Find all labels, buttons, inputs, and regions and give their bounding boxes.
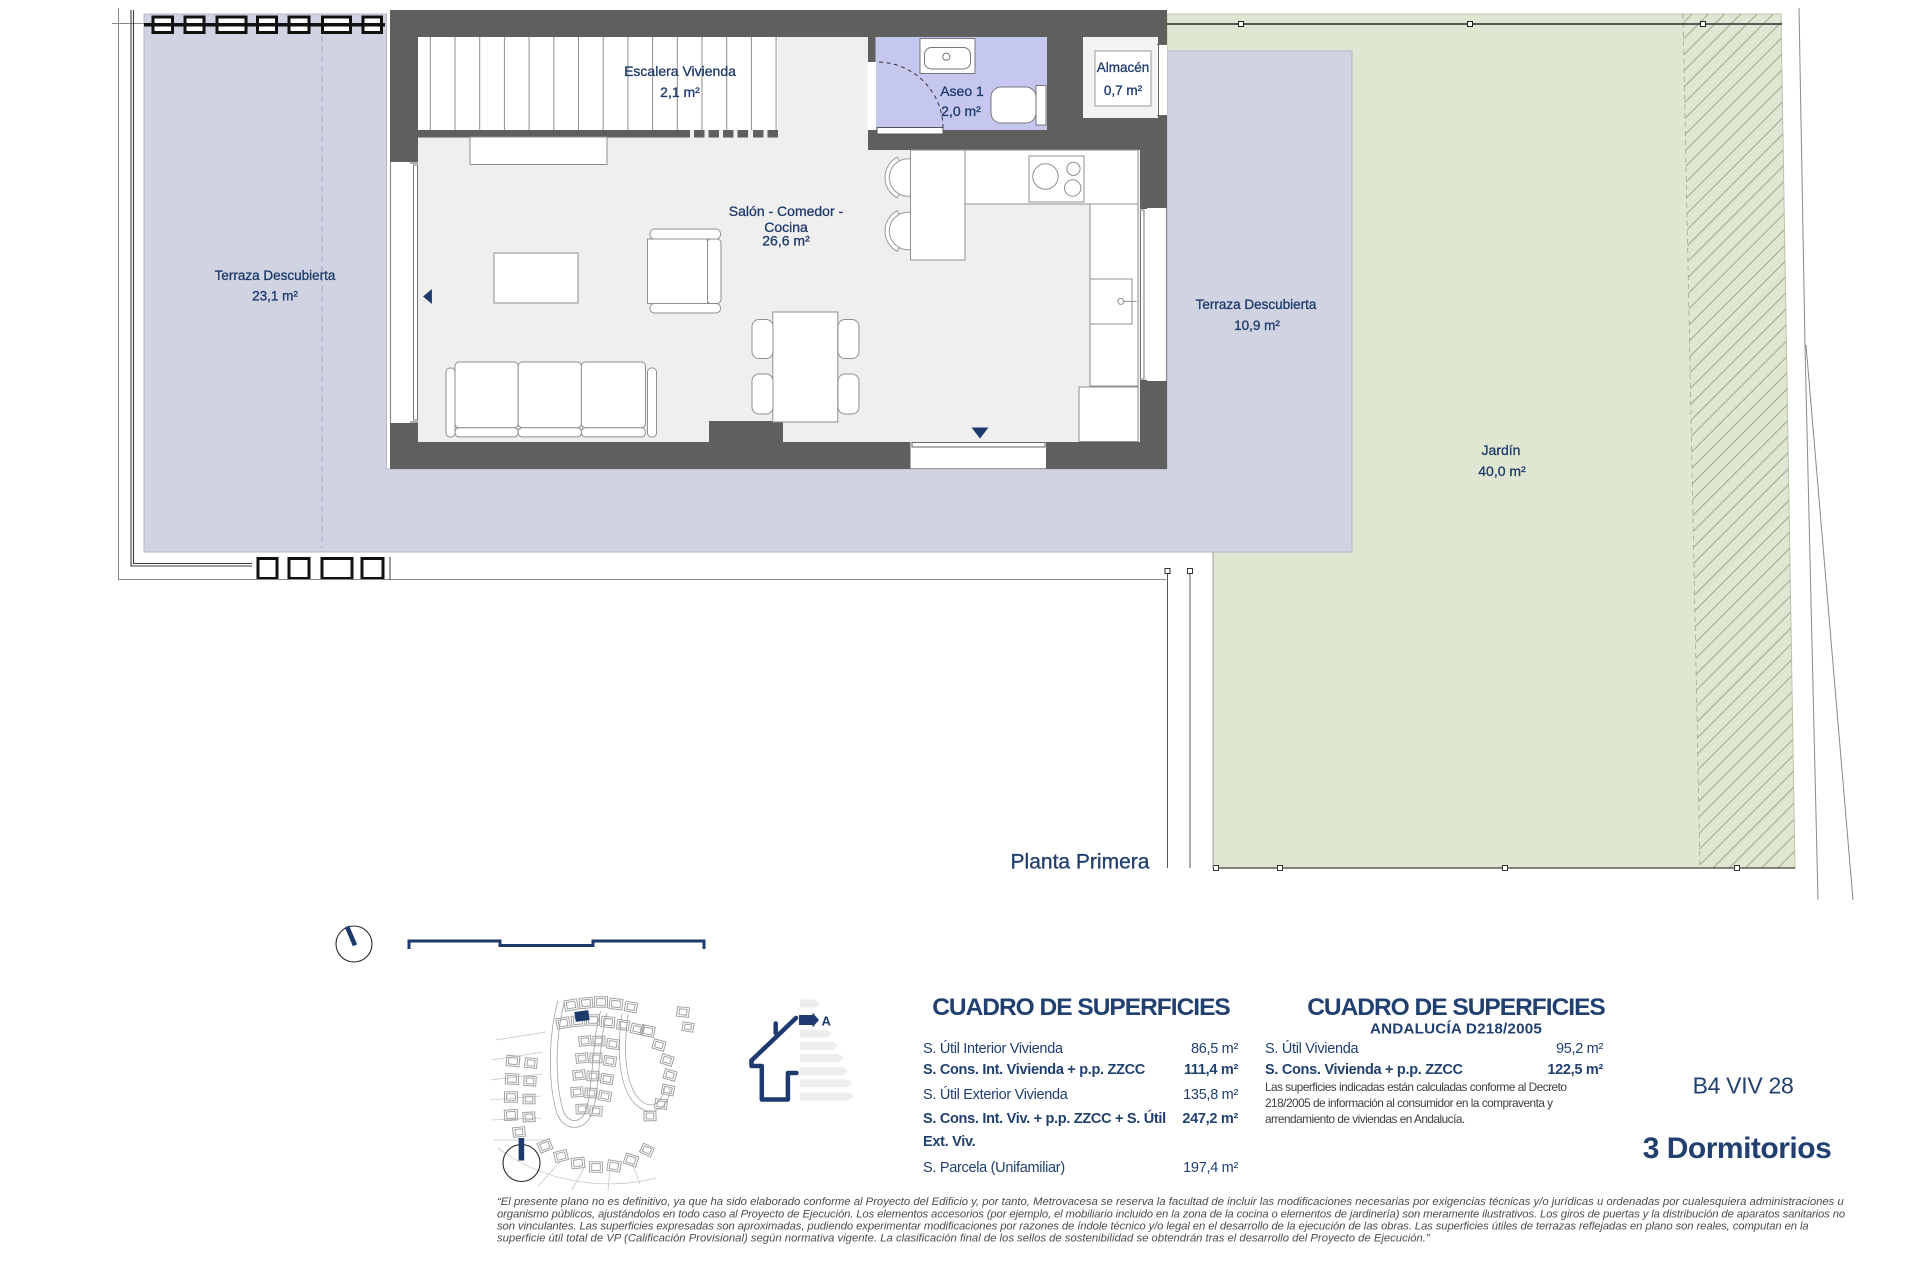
svg-text:Jardín: Jardín [1482,442,1521,458]
svg-text:S. Parcela (Unifamiliar): S. Parcela (Unifamiliar) [923,1160,1065,1176]
svg-text:superficie útil total de VP (C: superficie útil total de VP (Calificació… [497,1233,1431,1245]
svg-text:218/2005 de información al con: 218/2005 de información al consumidor en… [1265,1096,1553,1110]
svg-text:S. Útil Interior Vivienda: S. Útil Interior Vivienda [923,1040,1064,1057]
svg-text:111,4 m²: 111,4 m² [1184,1062,1239,1078]
svg-text:Las superficies indicadas está: Las superficies indicadas están calculad… [1265,1080,1567,1094]
svg-text:S. Útil Exterior Vivienda: S. Útil Exterior Vivienda [923,1086,1069,1103]
svg-text:CUADRO DE SUPERFICIES: CUADRO DE SUPERFICIES [932,994,1230,1021]
svg-text:86,5 m²: 86,5 m² [1191,1041,1239,1057]
svg-text:Planta Primera: Planta Primera [1011,851,1150,874]
svg-text:S. Cons. Int. Viv. + p.p. ZZCC: S. Cons. Int. Viv. + p.p. ZZCC + S. Útil [923,1109,1166,1127]
svg-text:Salón - Comedor -: Salón - Comedor - [729,203,844,219]
svg-text:S. Cons. Int. Vivienda + p.p.: S. Cons. Int. Vivienda + p.p. ZZCC [923,1062,1146,1078]
svg-text:247,2 m²: 247,2 m² [1182,1111,1238,1127]
svg-text:Terraza Descubierta: Terraza Descubierta [1196,297,1317,312]
svg-text:95,2 m²: 95,2 m² [1556,1041,1604,1057]
svg-text:2,1 m²: 2,1 m² [660,84,700,100]
svg-text:S. Útil Vivienda: S. Útil Vivienda [1265,1040,1359,1057]
svg-text:3 Dormitorios: 3 Dormitorios [1643,1132,1832,1165]
svg-text:197,4 m²: 197,4 m² [1183,1160,1238,1176]
svg-text:S. Cons. Vivienda + p.p. ZZCC: S. Cons. Vivienda + p.p. ZZCC [1265,1062,1464,1078]
svg-text:122,5 m²: 122,5 m² [1547,1062,1603,1078]
svg-text:Ext. Viv.: Ext. Viv. [923,1134,976,1150]
svg-text:“El presente plano no es defin: “El presente plano no es definitivo, ya … [497,1196,1844,1208]
svg-text:organismo públicos, ajustándol: organismo públicos, ajustándolos en todo… [497,1209,1845,1221]
svg-text:ANDALUCÍA D218/2005: ANDALUCÍA D218/2005 [1370,1021,1542,1038]
svg-text:Almacén: Almacén [1097,60,1150,75]
svg-text:Terraza Descubierta: Terraza Descubierta [215,268,336,283]
svg-text:23,1 m²: 23,1 m² [252,289,298,304]
svg-text:son vinculantes. Las superfici: son vinculantes. Las superficies expresa… [497,1221,1809,1233]
svg-text:40,0 m²: 40,0 m² [1478,463,1526,479]
svg-text:26,6 m²: 26,6 m² [762,233,810,249]
svg-text:arrendamiento de viviendas en: arrendamiento de viviendas en Andalucía. [1265,1112,1465,1126]
svg-text:135,8 m²: 135,8 m² [1183,1087,1238,1103]
svg-text:10,9 m²: 10,9 m² [1234,318,1280,333]
svg-text:2,0 m²: 2,0 m² [941,103,981,119]
svg-text:B4 VIV 28: B4 VIV 28 [1693,1073,1794,1099]
svg-text:Escalera Vivienda: Escalera Vivienda [624,63,736,79]
svg-text:0,7 m²: 0,7 m² [1104,83,1143,98]
svg-text:CUADRO DE SUPERFICIES: CUADRO DE SUPERFICIES [1307,994,1605,1021]
svg-text:Aseo 1: Aseo 1 [940,83,984,99]
svg-text:A: A [822,1014,832,1029]
